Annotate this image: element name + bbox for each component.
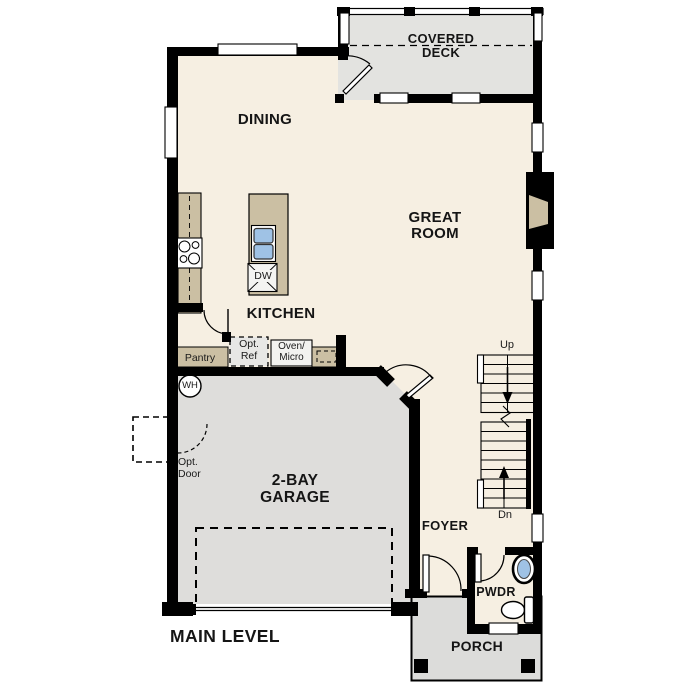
water-heater-label: WH — [179, 381, 201, 392]
opt-door-label: Opt. Door — [178, 457, 220, 481]
room-label-kitchen: KITCHEN — [231, 306, 331, 322]
stairs-up-label: Up — [487, 339, 527, 351]
room-label-foyer: FOYER — [405, 519, 485, 533]
plan-title: MAIN LEVEL — [170, 627, 310, 646]
room-label-powder: PWDR — [466, 586, 526, 600]
stairs-down-label: Dn — [485, 509, 525, 521]
fireplace — [526, 172, 554, 249]
room-label-garage: 2-BAY GARAGE — [245, 473, 345, 506]
room-label-porch: PORCH — [427, 639, 527, 654]
room-label-dining: DINING — [215, 112, 315, 128]
toilet-icon — [502, 602, 525, 619]
dishwasher-label: DW — [249, 271, 277, 283]
floor-plan-drawing — [0, 0, 687, 687]
pantry-label: Pantry — [172, 353, 228, 365]
floor-plan-page: COVERED DECK DINING GREAT ROOM KITCHEN 2… — [0, 0, 687, 687]
stairs — [478, 355, 536, 509]
oven-micro-label: Oven/ Micro — [271, 341, 312, 363]
room-label-great-room: GREAT ROOM — [385, 210, 485, 242]
room-label-covered-deck: COVERED DECK — [381, 32, 501, 60]
opt-ref-label: Opt. Ref — [230, 339, 268, 363]
